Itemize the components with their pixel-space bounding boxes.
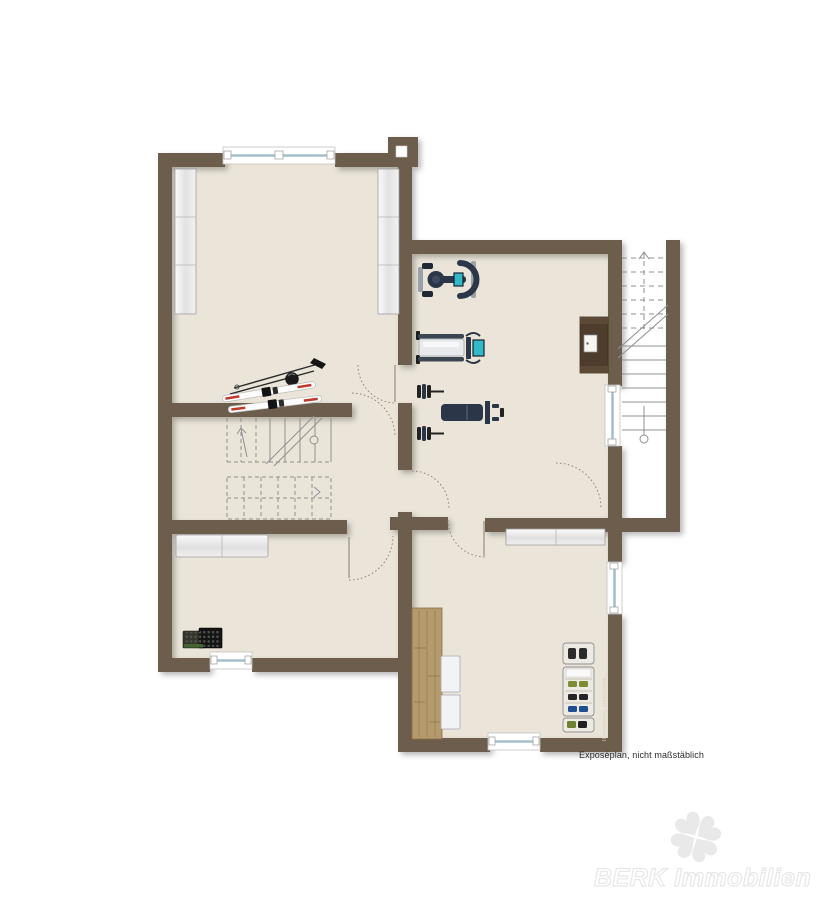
exterior-staircase-icon [618, 252, 668, 443]
side-panel [441, 695, 460, 729]
wall-cabinet-icon [580, 317, 608, 373]
window-icon [607, 562, 622, 614]
floor-plan-page: Illustration©immoGrafik Exposéplan, nich… [0, 0, 835, 900]
clover-icon [644, 810, 748, 864]
shoe-rack-icon [563, 643, 594, 732]
workbench-icon [412, 608, 442, 739]
top-cabinet [506, 529, 605, 545]
sideboard [176, 535, 268, 557]
floor-plan-drawing [0, 0, 835, 900]
agency-name: BERK Immobilien [594, 864, 811, 893]
wine-rack-icon [183, 628, 222, 648]
illustrator-credit: Illustration©immoGrafik [602, 657, 613, 741]
chimney-flue [396, 146, 407, 157]
window-icon [223, 147, 335, 164]
agency-watermark: BERK Immobilien [556, 808, 835, 900]
glass-door [605, 385, 620, 446]
shelf-unit-icon [378, 169, 399, 314]
shelf-unit-icon [175, 169, 196, 314]
plan-disclaimer: Exposéplan, nicht maßstäblich [579, 750, 704, 760]
window-icon [210, 652, 252, 669]
side-panel [441, 656, 460, 692]
window-icon [488, 733, 540, 750]
